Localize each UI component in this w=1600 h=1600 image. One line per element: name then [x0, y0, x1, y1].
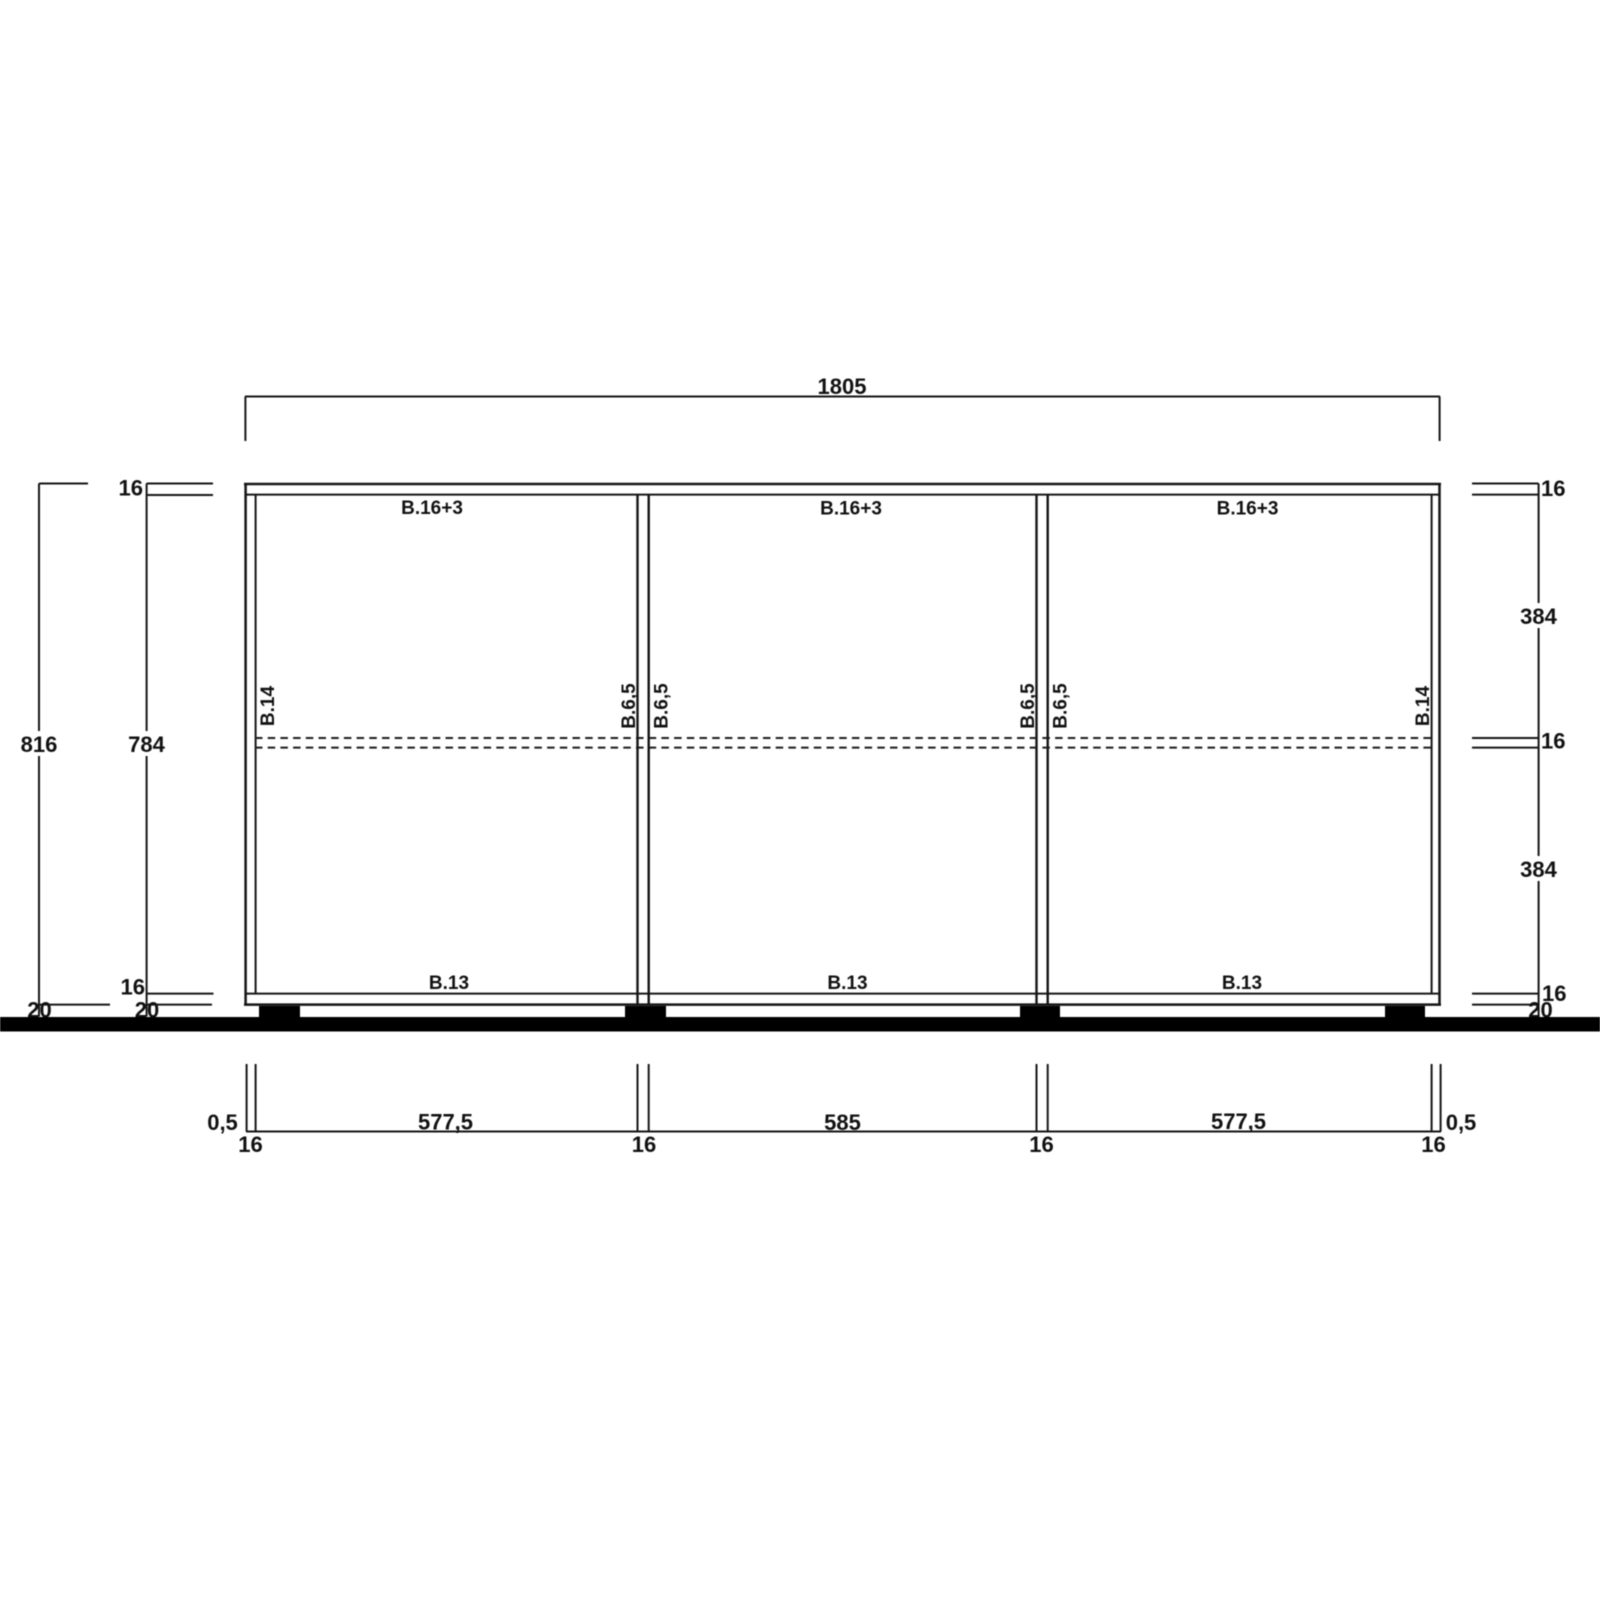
svg-text:16: 16 — [121, 975, 145, 1000]
svg-text:16: 16 — [1541, 476, 1565, 501]
svg-text:16: 16 — [1541, 729, 1565, 754]
svg-text:B.6,5: B.6,5 — [652, 683, 673, 729]
svg-text:B.6,5: B.6,5 — [1018, 683, 1039, 729]
svg-text:B.6,5: B.6,5 — [619, 683, 640, 729]
svg-text:0,5: 0,5 — [1446, 1110, 1477, 1135]
svg-text:16: 16 — [119, 476, 143, 501]
svg-text:B.13: B.13 — [429, 973, 469, 994]
svg-text:16: 16 — [1029, 1132, 1053, 1157]
svg-text:384: 384 — [1520, 604, 1557, 629]
svg-text:16: 16 — [238, 1132, 262, 1157]
svg-text:B.16+3: B.16+3 — [820, 499, 882, 520]
svg-text:B.13: B.13 — [1222, 973, 1262, 994]
svg-text:384: 384 — [1520, 857, 1557, 882]
svg-text:B.13: B.13 — [827, 973, 867, 994]
svg-text:0,5: 0,5 — [207, 1110, 238, 1135]
svg-text:B.6,5: B.6,5 — [1051, 683, 1072, 729]
svg-text:16: 16 — [1421, 1132, 1445, 1157]
svg-text:1805: 1805 — [818, 374, 867, 399]
svg-text:784: 784 — [128, 732, 165, 757]
svg-text:816: 816 — [21, 732, 58, 757]
svg-text:B.14: B.14 — [258, 686, 279, 727]
svg-text:B.16+3: B.16+3 — [401, 498, 463, 519]
svg-text:B.14: B.14 — [1413, 686, 1434, 727]
svg-text:B.16+3: B.16+3 — [1217, 499, 1279, 520]
svg-text:577,5: 577,5 — [1211, 1109, 1266, 1134]
svg-text:577,5: 577,5 — [418, 1110, 473, 1135]
svg-text:585: 585 — [824, 1110, 861, 1135]
svg-text:16: 16 — [632, 1132, 656, 1157]
